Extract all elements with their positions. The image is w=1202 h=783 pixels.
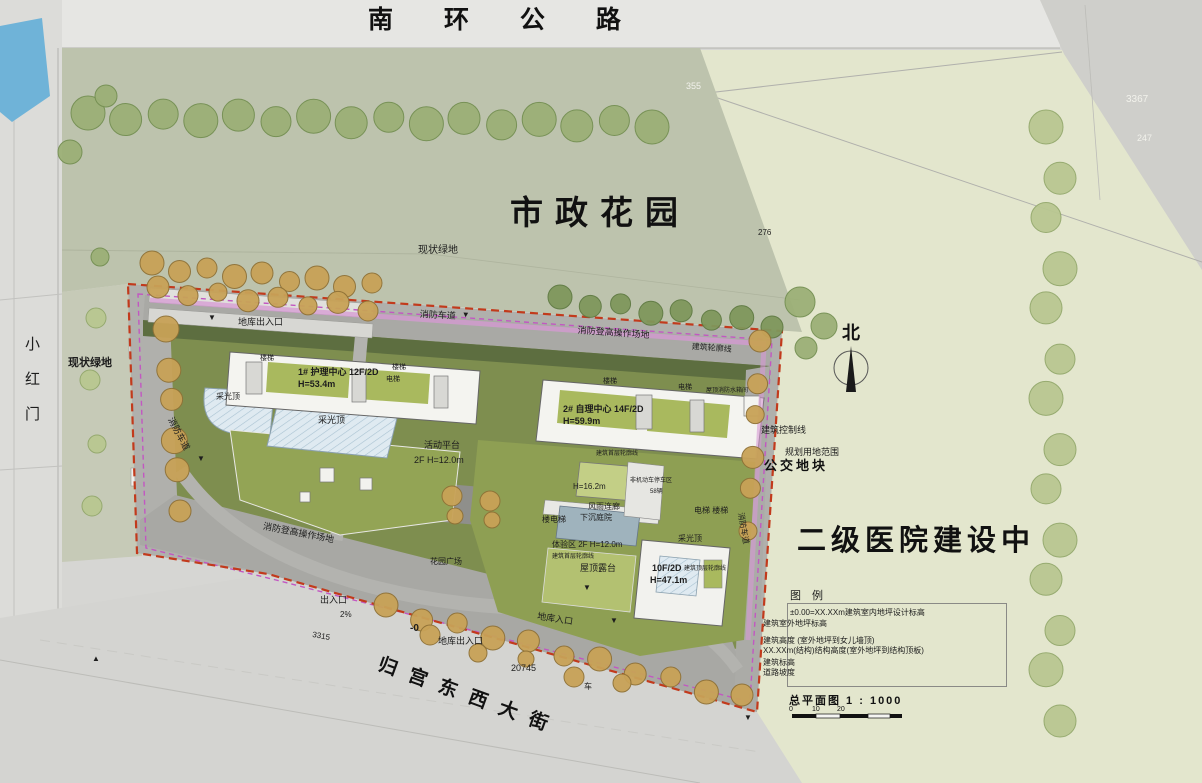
tree-icon — [268, 287, 288, 307]
west-road-label: 小红门 — [24, 336, 39, 441]
tree-icon — [701, 310, 721, 330]
skylight-label-center: 采光顶 — [318, 416, 345, 425]
tree-icon — [178, 286, 198, 306]
legend-item: 建筑室外地坪标高 — [763, 620, 827, 628]
tree-icon — [91, 248, 109, 266]
tree-icon — [165, 458, 189, 482]
sunken-courtyard-label: 下沉庭院 — [580, 514, 612, 522]
dim-276: 276 — [758, 229, 771, 237]
tree-icon — [140, 251, 164, 275]
compass-north-label: 北 — [842, 324, 860, 342]
bike-parking-count: 58辆 — [650, 489, 663, 495]
tree-icon — [169, 500, 191, 522]
tree-icon — [742, 446, 764, 468]
tree-icon — [564, 667, 584, 687]
bike-parking-label: 非机动车停车区 — [630, 478, 672, 484]
dim-247: 247 — [1137, 134, 1152, 143]
tree-icon — [1029, 381, 1063, 415]
tree-icon — [599, 105, 629, 135]
tree-icon — [1044, 434, 1076, 466]
slope-label: 2% — [340, 611, 352, 619]
legend-item: 道路坡度 — [763, 669, 795, 677]
tree-icon — [80, 370, 100, 390]
scale-bar — [792, 714, 902, 718]
tree-icon — [484, 512, 500, 528]
tree-icon — [1044, 705, 1076, 737]
tree-icon — [335, 107, 367, 139]
tree-icon — [1030, 563, 1062, 595]
road-direction-marker: ▼ — [744, 714, 752, 722]
legend-item: 建筑高度 (室外地坪到女儿墙顶) — [763, 637, 875, 645]
tree-icon — [82, 496, 102, 516]
dim-3367: 3367 — [1126, 95, 1148, 105]
level-label: -0 — [410, 624, 419, 634]
building-3-height: H=47.1m — [650, 576, 687, 585]
tree-icon — [447, 613, 467, 633]
roof-terrace-label: 屋顶露台 — [580, 564, 616, 573]
tree-icon — [1045, 616, 1075, 646]
tree-icon — [197, 258, 217, 278]
building-control-line-label: 建筑控制线 — [761, 426, 806, 435]
tree-icon — [795, 337, 817, 359]
tree-icon — [1029, 110, 1063, 144]
road-direction-marker: ▼ — [208, 314, 216, 322]
first-floor-outline-label-a: 建筑首层轮廓线 — [596, 451, 638, 457]
tree-icon — [1030, 292, 1062, 324]
elevator-label-b1: 电梯 — [386, 376, 400, 383]
tree-icon — [635, 110, 669, 144]
experience-zone-label: 体验区 2F H=12.0m — [552, 541, 622, 549]
first-floor-outline-label-b: 建筑首层轮廓线 — [552, 554, 594, 560]
site-plan-canvas: 南 环 公 路 市政花园 二级医院建设中 公交地块 小红门 归宫东西大街 北 图… — [0, 0, 1202, 783]
tree-icon — [237, 290, 259, 312]
building-2-label: 2# 自理中心 14F/2D — [563, 405, 644, 414]
garden-area-label: 市政花园 — [510, 196, 690, 229]
tree-icon — [327, 291, 349, 313]
tree-icon — [740, 478, 760, 498]
building-1-height: H=53.4m — [298, 380, 335, 389]
tree-icon — [420, 625, 440, 645]
tree-icon — [223, 265, 247, 289]
tree-icon — [358, 301, 378, 321]
planning-boundary-label: 规划用地范围 — [785, 448, 839, 457]
tree-icon — [374, 102, 404, 132]
tree-icon — [147, 276, 169, 298]
stair-label-b2-west: 楼梯 — [603, 378, 617, 385]
tree-icon — [442, 486, 462, 506]
tree-icon — [1044, 162, 1076, 194]
dim-355: 355 — [686, 82, 701, 91]
tree-icon — [261, 107, 291, 137]
road-direction-marker: ▼ — [583, 584, 591, 592]
building-1-label: 1# 护理中心 12F/2D — [298, 368, 379, 377]
legend-item: 建筑标高 — [763, 659, 795, 667]
tree-icon — [58, 140, 82, 164]
tree-icon — [1031, 474, 1061, 504]
podium-height-label: H=16.2m — [573, 483, 606, 491]
activity-platform-height: 2F H=12.0m — [414, 456, 464, 465]
garden-plaza-label: 花园广场 — [430, 558, 462, 566]
tree-icon — [548, 285, 572, 309]
north-road-label: 南 环 公 路 — [368, 8, 643, 33]
tree-icon — [184, 104, 218, 138]
tree-icon — [222, 99, 254, 131]
tree-icon — [661, 667, 681, 687]
building-2-height: H=59.9m — [563, 417, 600, 426]
tree-icon — [748, 374, 768, 394]
legend-title: 图 例 — [790, 591, 827, 602]
scale-tick: 10 — [812, 706, 820, 713]
tree-icon — [448, 102, 480, 134]
tree-icon — [811, 313, 837, 339]
elevator-label-b2: 电梯 — [678, 384, 692, 391]
tree-icon — [161, 388, 183, 410]
existing-green-label-top: 现状绿地 — [418, 246, 458, 256]
tree-icon — [169, 261, 191, 283]
tree-icon — [1043, 523, 1077, 557]
roof-fire-tank-label: 屋顶消防水箱间 — [706, 388, 748, 394]
tree-icon — [749, 330, 771, 352]
tree-icon — [447, 508, 463, 524]
tree-icon — [730, 306, 754, 330]
legend-item: XX.XXm(结构)结构高度(室外地坪到结构顶板) — [763, 647, 924, 655]
entrance-label-sw: 出入口 — [320, 596, 347, 605]
top-floor-outline-label: 建筑顶层轮廓线 — [684, 566, 726, 572]
site-plan-drawing — [0, 0, 1202, 783]
road-direction-marker: ▲ — [92, 655, 100, 663]
tree-icon — [95, 85, 117, 107]
activity-platform-label: 活动平台 — [424, 441, 460, 450]
tree-icon — [694, 680, 718, 704]
tree-icon — [297, 99, 331, 133]
plan-title: 总平面图 1 : 1000 — [789, 696, 902, 707]
tree-icon — [561, 110, 593, 142]
skylight-label-east: 采光顶 — [678, 535, 702, 543]
tree-icon — [487, 110, 517, 140]
tree-icon — [305, 266, 329, 290]
tree-icon — [469, 644, 487, 662]
tree-icon — [480, 491, 500, 511]
road-direction-marker: ▼ — [462, 311, 470, 319]
tree-icon — [588, 647, 612, 671]
tree-icon — [110, 104, 142, 136]
tree-icon — [670, 300, 692, 322]
tree-icon — [299, 297, 317, 315]
scale-tick: 20 — [837, 706, 845, 713]
tree-icon — [639, 301, 663, 325]
stair-elevator-label: 楼电梯 — [542, 516, 566, 524]
tree-icon — [611, 294, 631, 314]
tree-icon — [579, 295, 601, 317]
tree-icon — [374, 593, 398, 617]
tree-icon — [1029, 653, 1063, 687]
tree-icon — [409, 107, 443, 141]
hospital-area-label: 二级医院建设中 — [797, 527, 1035, 556]
tree-icon — [362, 273, 382, 293]
tree-icon — [157, 358, 181, 382]
tree-icon — [746, 406, 764, 424]
tree-icon — [1031, 202, 1061, 232]
elevator-stair-label-east: 电梯 楼梯 — [694, 507, 728, 515]
bus-plot-label: 公交地块 — [764, 459, 828, 472]
tree-icon — [613, 674, 631, 692]
tree-icon — [785, 287, 815, 317]
road-direction-marker: ▼ — [197, 455, 205, 463]
tree-icon — [251, 262, 273, 284]
stair-label-b1-west: 楼梯 — [260, 355, 274, 362]
legend-item: ±0.00=XX.XXm建筑室内地坪设计标高 — [790, 609, 925, 617]
dim-20745: 20745 — [511, 664, 536, 673]
vehicle-label: 车 — [584, 683, 592, 691]
tree-icon — [731, 684, 753, 706]
building-3-label: 10F/2D — [652, 564, 682, 573]
tree-icon — [88, 435, 106, 453]
fire-lane-label-top: 消防车道 — [420, 310, 456, 321]
tree-icon — [1043, 252, 1077, 286]
scale-tick: 0 — [789, 706, 793, 713]
tree-icon — [148, 99, 178, 129]
tree-icon — [554, 646, 574, 666]
tree-icon — [522, 102, 556, 136]
tree-icon — [209, 283, 227, 301]
garage-entrance-label-s2: 地库出入口 — [438, 637, 483, 646]
tree-icon — [517, 630, 539, 652]
tree-icon — [1045, 344, 1075, 374]
garage-exit-label-nw: 地库出入口 — [238, 318, 283, 327]
covered-corridor-label: 风雨连廊 — [588, 503, 620, 511]
tree-icon — [153, 316, 179, 342]
stair-label-b1-east: 楼梯 — [392, 364, 406, 371]
road-direction-marker: ▼ — [610, 617, 618, 625]
skylight-label-west: 采光顶 — [216, 393, 240, 401]
tree-icon — [86, 308, 106, 328]
existing-green-label-west: 现状绿地 — [68, 358, 112, 369]
